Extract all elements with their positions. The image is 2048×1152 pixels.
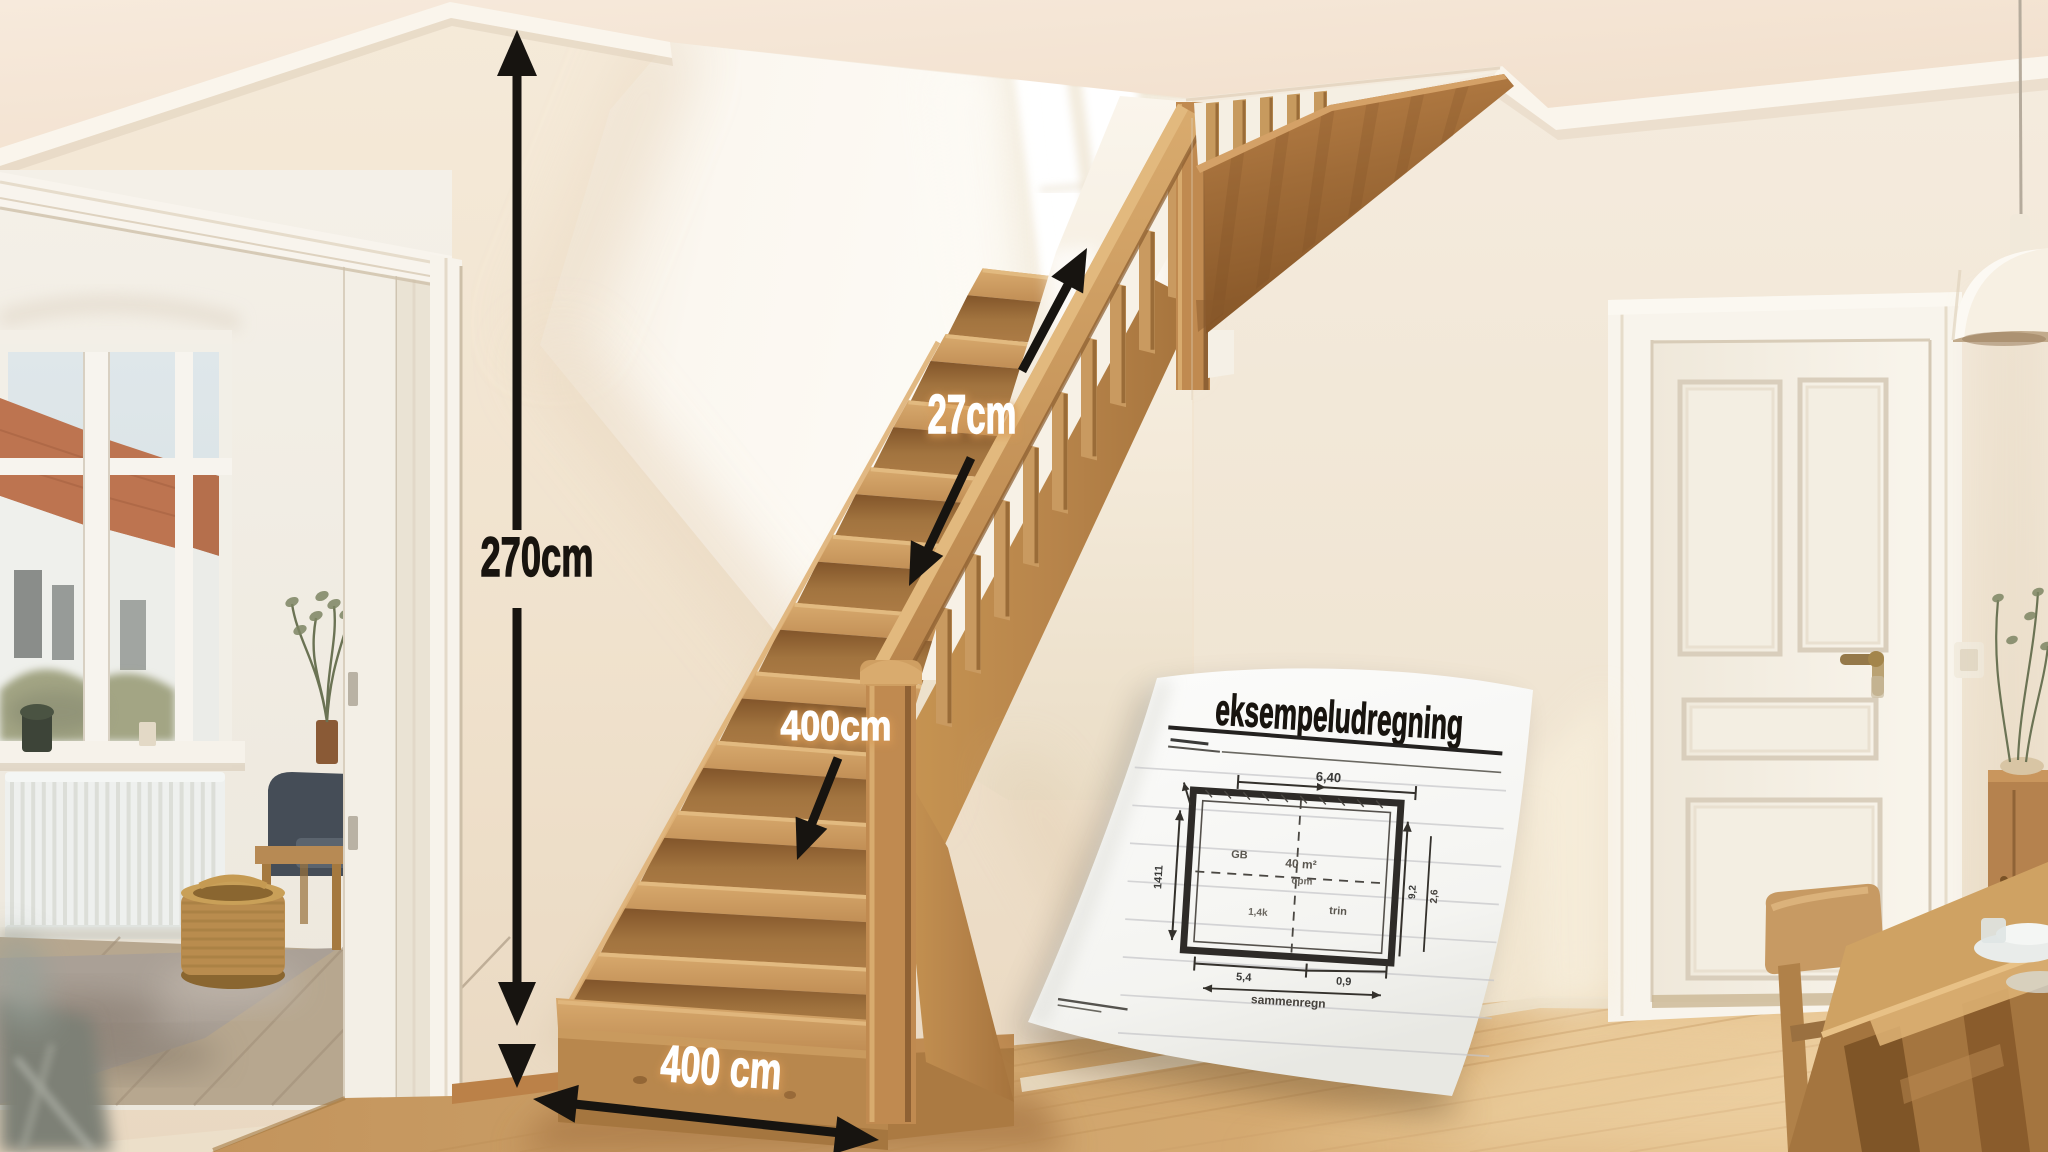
svg-text:1411: 1411 bbox=[1152, 865, 1165, 890]
svg-text:27cm: 27cm bbox=[928, 383, 1017, 445]
svg-text:opm: opm bbox=[1291, 875, 1313, 887]
svg-text:40 m²: 40 m² bbox=[1285, 856, 1317, 872]
svg-text:400cm: 400cm bbox=[781, 702, 892, 749]
svg-text:trin: trin bbox=[1329, 905, 1348, 918]
svg-text:0,9: 0,9 bbox=[1336, 975, 1352, 988]
svg-text:GB: GB bbox=[1231, 849, 1248, 862]
svg-text:1,4k: 1,4k bbox=[1248, 907, 1269, 919]
svg-text:9,2: 9,2 bbox=[1407, 884, 1419, 899]
svg-text:5,4: 5,4 bbox=[1236, 971, 1253, 984]
svg-text:6,40: 6,40 bbox=[1315, 769, 1341, 786]
svg-text:400 cm: 400 cm bbox=[659, 1035, 784, 1101]
svg-text:2,6: 2,6 bbox=[1429, 889, 1441, 904]
svg-text:270cm: 270cm bbox=[481, 525, 594, 588]
